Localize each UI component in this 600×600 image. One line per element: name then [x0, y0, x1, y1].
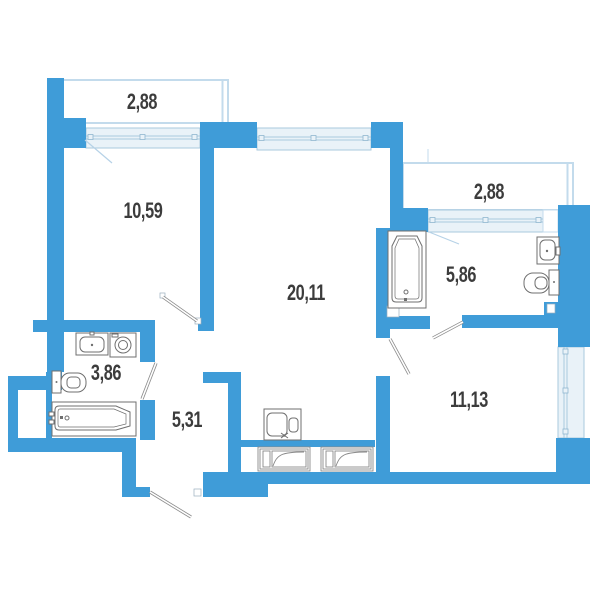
door-swing-entrance [150, 492, 191, 517]
sink-icon [537, 237, 560, 264]
bathtub-icon [49, 402, 136, 436]
area-label-bathroom-left: 3,86 [91, 360, 121, 386]
washing-machine-icon [110, 333, 136, 357]
door-swing-bedroom [163, 297, 197, 321]
door-swing-living [390, 339, 409, 374]
window-bathroom-right [428, 210, 558, 232]
area-label-balcony-right: 2,88 [474, 179, 504, 205]
area-label-hallway: 5,31 [172, 407, 202, 433]
window-room-right [558, 347, 584, 438]
bathtub-icon [388, 231, 426, 308]
area-label-bathroom-right: 5,86 [446, 262, 476, 288]
balcony-door-swing-bathroom-right [429, 232, 459, 244]
toilet-icon [52, 371, 86, 393]
kitchen-sink-icon [264, 409, 301, 440]
area-label-balcony-top: 2,88 [127, 89, 157, 115]
area-label-room-right: 11,13 [450, 387, 488, 413]
area-label-bedroom: 10,59 [124, 198, 163, 224]
appliance-symbol [321, 447, 373, 471]
appliance-symbol [258, 447, 310, 471]
area-label-living: 20,11 [287, 280, 325, 306]
door-swing-bathroom-left [142, 363, 156, 399]
sink-icon [76, 332, 108, 355]
toilet-icon [524, 270, 559, 295]
window-living [257, 128, 371, 150]
window-bedroom [86, 128, 200, 148]
floor-plan: 2,88 10,59 20,11 2,88 5,86 11,13 3,86 5,… [0, 0, 600, 600]
door-swing-bathroom-right [433, 322, 463, 338]
